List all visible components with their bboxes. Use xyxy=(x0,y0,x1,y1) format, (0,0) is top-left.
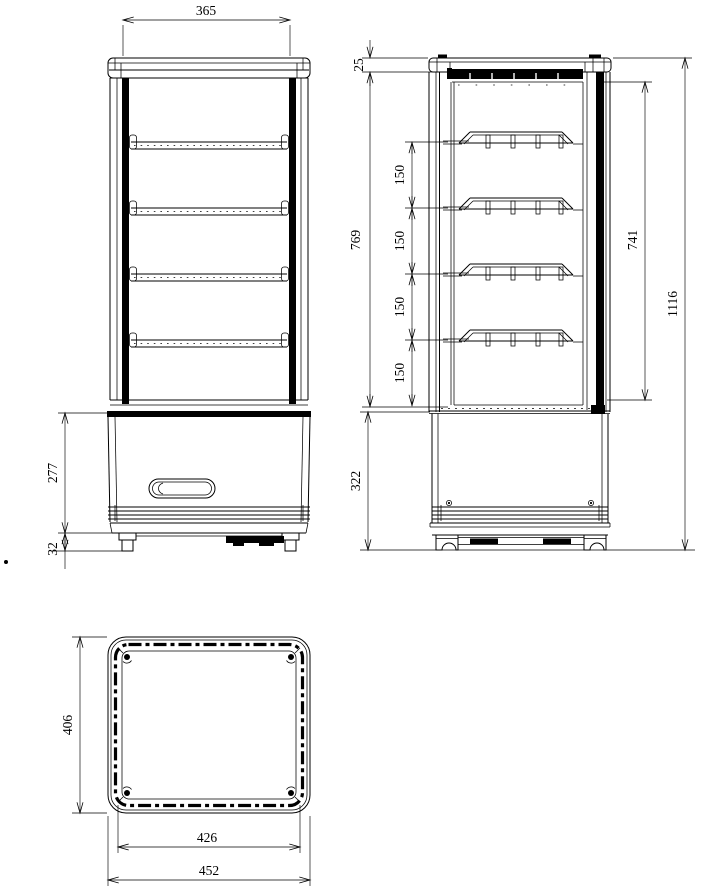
front-left-post xyxy=(122,78,129,404)
side-shelf-2 xyxy=(443,198,583,214)
dim-label-150-1: 150 xyxy=(392,165,407,186)
side-base xyxy=(430,414,610,551)
screw-bottom-right xyxy=(287,787,301,802)
dim-label-406: 406 xyxy=(60,715,75,736)
front-base xyxy=(107,411,311,551)
top-gasket-chain-line xyxy=(116,645,303,806)
dim-label-322: 322 xyxy=(348,471,363,491)
top-corner-screws xyxy=(118,648,300,802)
dim-label-426: 426 xyxy=(197,830,218,845)
dim-label-150-3: 150 xyxy=(392,297,407,318)
dim-label-277: 277 xyxy=(45,463,60,484)
front-vent-grille xyxy=(108,505,310,521)
side-left-foot xyxy=(436,535,458,550)
dim-top-depth: 406 xyxy=(60,637,107,813)
side-vent-grille xyxy=(432,505,608,521)
side-view: 25 769 150 150 150 150 xyxy=(348,40,695,550)
dim-front-base-height: 277 xyxy=(45,413,118,533)
dim-label-769: 769 xyxy=(348,230,363,251)
dim-label-1116: 1116 xyxy=(665,291,680,317)
screw-top-left xyxy=(118,648,132,663)
dim-front-top-width: 365 xyxy=(123,3,290,56)
top-inner-liner xyxy=(122,651,296,799)
side-shelf-4 xyxy=(443,330,583,346)
side-right-foot xyxy=(584,535,606,550)
front-handle xyxy=(149,479,215,498)
dim-label-452: 452 xyxy=(199,863,219,878)
top-view: 406 426 452 xyxy=(60,637,310,886)
front-shelf-3 xyxy=(130,267,289,281)
technical-drawing-page: 365 277 32 xyxy=(0,0,709,894)
dim-top-inner-width: 426 xyxy=(118,805,300,853)
stray-dot-artifact xyxy=(4,560,8,564)
dim-label-365: 365 xyxy=(196,3,217,18)
screw-top-right xyxy=(287,648,301,663)
dim-front-foot-height: 32 xyxy=(45,533,133,569)
top-outer-shell xyxy=(108,637,310,813)
side-screw-left xyxy=(446,500,451,505)
side-interior-top-header xyxy=(447,68,583,85)
dim-label-741: 741 xyxy=(625,230,640,250)
front-glass-body xyxy=(110,78,308,405)
side-base-plate xyxy=(430,523,610,535)
side-compressor-tray xyxy=(458,538,584,545)
side-glass-body xyxy=(429,72,610,414)
front-left-foot xyxy=(119,533,136,551)
front-shelf-4 xyxy=(130,333,289,347)
dim-side-door-height: 741 xyxy=(600,82,652,400)
front-compressor xyxy=(226,536,284,546)
side-shelf-1 xyxy=(443,132,583,148)
side-door-bottom-block xyxy=(591,405,605,414)
front-base-plate xyxy=(110,523,308,533)
dim-label-32: 32 xyxy=(45,542,60,556)
dim-label-150-4: 150 xyxy=(392,363,407,384)
side-screw-right xyxy=(588,500,593,505)
dim-side-base-height: 322 xyxy=(348,412,430,550)
front-shelf-1 xyxy=(130,135,289,149)
front-shelf-2 xyxy=(130,201,289,215)
side-shelf-3 xyxy=(443,264,583,280)
front-base-band xyxy=(107,411,311,417)
front-right-foot xyxy=(282,533,299,551)
front-right-post xyxy=(289,78,296,404)
dim-top-outer-width: 452 xyxy=(108,816,310,886)
screw-bottom-left xyxy=(118,787,132,802)
dim-side-total-height: 1116 xyxy=(613,58,692,550)
dim-label-150-2: 150 xyxy=(392,231,407,252)
side-interior-floor xyxy=(429,405,610,414)
cabinet-drawing-svg: 365 277 32 xyxy=(0,0,709,894)
side-door-glass-edge xyxy=(596,72,604,405)
dim-side-cap-height: 25 xyxy=(351,40,450,86)
dim-label-25: 25 xyxy=(351,58,366,72)
front-top-cap xyxy=(108,58,310,78)
front-view: 365 277 32 xyxy=(45,3,311,569)
